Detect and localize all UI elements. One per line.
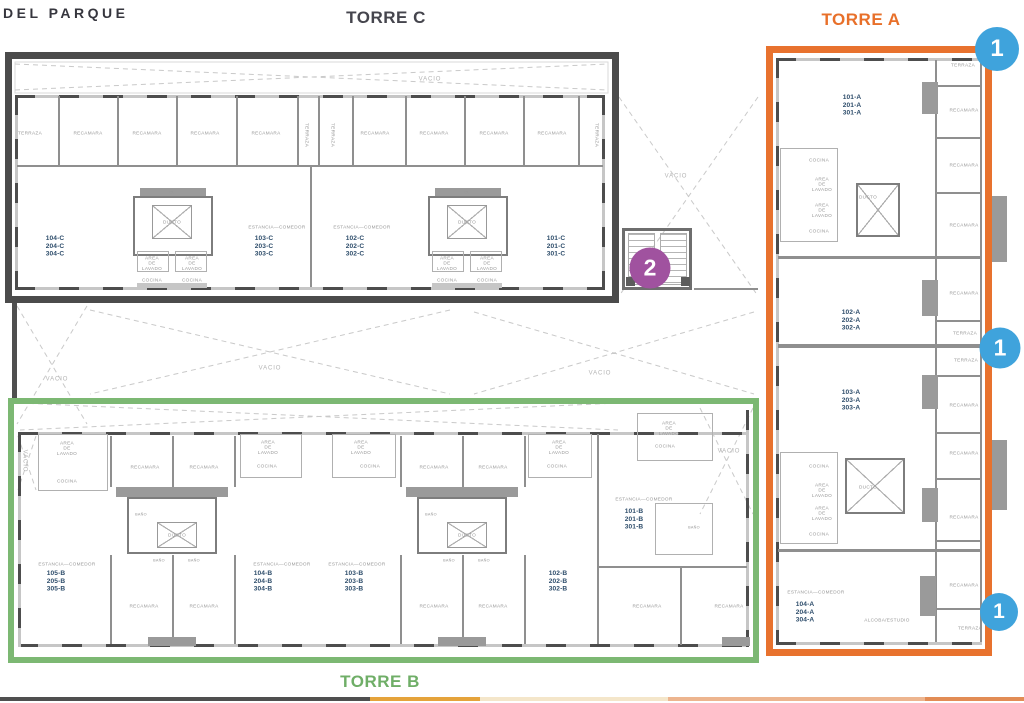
unit-count-marker[interactable]: 1 — [980, 328, 1021, 369]
unit-count-marker[interactable]: 1 — [980, 593, 1018, 631]
footer-strip-segment — [480, 697, 668, 701]
floorplan-page: DEL PARQUE TORRE C TORRE A TORRE B — [0, 0, 1024, 703]
footer-strip-segment — [370, 697, 480, 701]
floorplan: TERRAZARECAMARARECAMARARECAMARARECAMARAT… — [0, 0, 1024, 703]
footer-color-strip — [0, 697, 1024, 701]
unit-count-marker[interactable]: 2 — [630, 248, 671, 289]
markers-layer: 1112 — [0, 0, 1024, 703]
footer-strip-segment — [0, 697, 370, 701]
unit-count-marker[interactable]: 1 — [975, 27, 1019, 71]
footer-strip-segment — [925, 697, 1024, 701]
footer-strip-segment — [668, 697, 925, 701]
